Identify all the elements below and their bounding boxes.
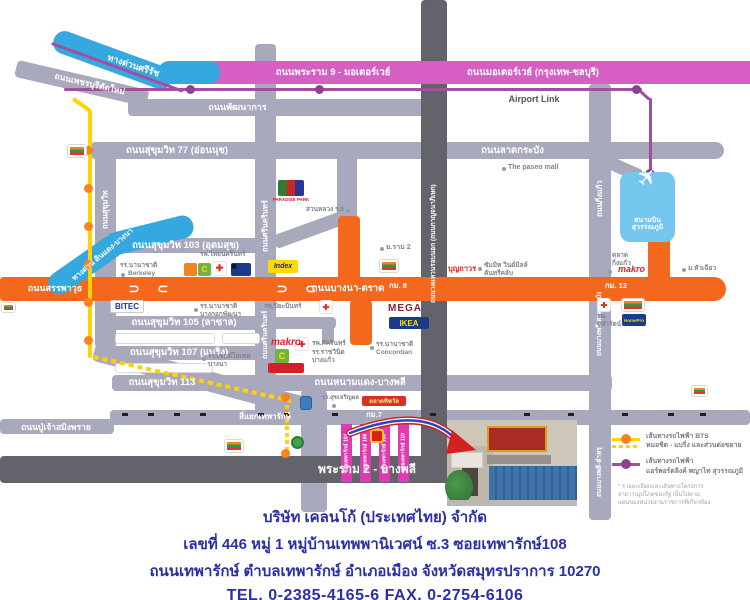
bitec-logo: BITEC [110,300,144,313]
label-sanphawut: ถนนสรรพาวุธ [16,282,94,295]
legend-airportlink-row: เส้นทางรถไฟฟ้า แอร์พอร์ตลิงค์ พญาไท สุวร… [612,457,750,475]
legend-bts-line1: เส้นทางรถไฟฟ้า BTS [646,432,741,441]
label-berkeley-school-1: รร.นานาชาติ [120,262,157,269]
label-suanluang-r9: สวนหลวง ร.9 [306,206,344,213]
index-logo: Index [268,260,298,273]
store-logo-orange [184,263,197,276]
road-tick [332,413,338,416]
company-photo-sign [487,426,547,452]
label-motorway: ถนนมอเตอร์เวย์ (กรุงเทพ-ชลบุรี) [448,66,618,79]
company-photo-awning [487,455,551,464]
hospital-cross-icon: ✚ [598,299,610,311]
road-tick [622,413,628,416]
company-contact: TEL. 0-2385-4165-6 FAX. 0-2754-6106 [0,587,750,600]
label-namdaeng-bangplee: ถนนหนามแดง-บางพลี [302,377,418,389]
uturn-mark: ⊃ ⊂ [126,281,178,297]
mega-bangna-logo: MEGA [388,303,422,314]
company-photo-sign-white [451,452,483,468]
tippawan-market-badge: ตลาดทิพวัล [362,396,406,406]
landmark-dot [478,267,482,271]
landmark-dot [332,404,336,408]
landmark-dot [121,273,125,277]
label-chularat-2: จุฬารัตน์ [597,321,621,328]
bts-station-dot [84,184,93,193]
bts-hook [72,97,92,113]
seven-eleven-logo [380,260,398,272]
legend-note-line1: * รายละเอียดและเส้นทางโครงการ [618,483,750,491]
paradise-park-logo-stripes [278,180,304,196]
company-address-block: บริษัท เคลนโก้ (ประเทศไทย) จำกัด เลขที่ … [0,505,750,600]
label-concordian-1: รร.นานาชาติ [376,341,413,348]
label-sukhumvit113: ถนนสุขุมวิท 113 [116,377,208,389]
hospital-cross-icon: ✚ [213,262,226,275]
road-tick [200,413,206,416]
label-thainakarin-hospital: รพ.ไทยนครินทร์ [200,251,245,258]
label-huachiew-university: ม.หัวเฉียว [688,265,716,272]
label-windmill-2: คันทรีคลับ [484,270,513,277]
landmark-dot [202,357,206,361]
label-berkeley-school-2: Berkeley [128,270,155,277]
bts-line-icon [612,434,646,448]
legend-note-line2: สาธารณูปโภคของรัฐ เป็นไปตาม [618,491,750,499]
label-thepharak-junction: สี่แยกเทพารักษ์ [226,411,304,423]
ikea-logo: IKEA [389,317,429,329]
road-tick [174,413,180,416]
legend-airportlink-text: เส้นทางรถไฟฟ้า แอร์พอร์ตลิงค์ พญาไท สุวร… [646,457,743,475]
landmark-dot [380,247,384,251]
label-sukhumvit105: ถนนสุขุมวิท 105 (ลาซาล) [118,317,250,329]
bts-station-d ot [84,298,93,307]
road-tick [700,413,706,416]
road-lasalle-white [115,333,215,344]
road-tick [524,413,530,416]
label-windmill-1: ซัมมิท วินด์มิลล์ [484,262,528,269]
label-stjoseph-1: รร.เซนต์โยเซฟ [208,353,251,360]
label-sukhumvit77: ถนนสุขุมวิท 77 (อ่อนนุช) [112,144,242,157]
bts-station-dot [84,222,93,231]
legend-bts-line2: หมอชิต - แบริ่ง และส่วนต่อขยาย [646,441,741,450]
orange-ramp-airport [648,236,670,282]
label-talad-kingkaew-1: ตลาด [612,252,628,259]
label-chularat-1: รพ. [597,313,607,320]
road-tick [148,413,154,416]
label-ratchawinit-2: บางแก้ว [312,357,335,364]
bts-extension-vert [285,398,289,456]
paradise-park-logo-text: PARADISE PARK [272,198,310,212]
airport-link-line-icon [612,459,646,473]
landmark-dot [502,167,506,171]
label-sukjaroenpon-school: รร.สุขเจริญผล [322,395,359,402]
landmark-blue-icon [300,396,312,410]
landmark-dot [682,268,686,272]
landmark-dot [370,346,374,350]
seven-eleven-logo [2,303,15,312]
label-boonthavorn: บุญถาวร [448,263,476,275]
airportlink-station-dot [632,85,641,94]
bigc-logo: C [198,263,211,276]
makro-logo: makro [271,337,301,348]
landmark-dot [194,308,198,312]
label-bangkok-pattana-1: รร.นานาชาติ [200,303,237,310]
label-paseo-mall: The paseo mall [508,164,559,172]
landmark-green-icon [291,436,304,449]
legend-airportlink-line2: แอร์พอร์ตลิงค์ พญาไท สุวรรณภูมิ [646,467,743,476]
hospital-cross-icon: ✚ [320,301,332,313]
label-kingkaew-vert: ถนนกิ่งแก้ว [589,156,611,241]
label-concordian-2: Concordian [376,349,412,356]
company-address-line1: เลขที่ 446 หมู่ 1 หมู่บ้านเทพพานิเวศน์ ซ… [0,532,750,556]
label-sikarin-hospital: รพ.ศิครินทร์ [312,340,346,347]
legend-bts-text: เส้นทางรถไฟฟ้า BTS หมอชิต - แบริ่ง และส่… [646,432,741,450]
orange-ramp-south [350,300,372,345]
legend-bts-row: เส้นทางรถไฟฟ้า BTS หมอชิต - แบริ่ง และส่… [612,432,750,450]
label-poochao: ถนนปู่เจ้าสมิงพราย [8,421,104,433]
road-tick [122,413,128,416]
label-bangplee-tamru-vert: ถนนบางพลี-ตำหรุ [589,428,611,516]
label-ratchawinit-1: รร.ราชวินิต [312,349,345,356]
landmark-dot [346,209,350,213]
bts-station-dot [84,336,93,345]
airportlink-station-dot [315,85,324,94]
label-suvarnabhumi: สนามบิน สุวรรณภูมิ [620,210,675,238]
store-sign-logo-navy: HomePro [622,314,646,326]
landmark-dot [608,270,612,274]
label-phatthanakan: ถนนพัฒนาการ [195,101,280,114]
seven-eleven-logo [692,386,707,396]
road-tick [568,413,574,416]
orange-ramp-north [338,216,360,282]
company-photo-plant [445,470,473,504]
label-ladkrabang: ถนนลาดกระบัง [465,144,560,157]
mall-logo-navy: ▦ [231,263,251,276]
label-bangkok-pattana-2: บางกอกพัฒนา [200,311,241,318]
label-srinakarin-upper: ถนนศรีนครินทร์ [255,180,276,272]
label-km8: กม. 8 [383,280,413,291]
company-location-marker [370,429,384,443]
label-rama2-bangplee: พระราม 2 - บางพลี [306,459,428,479]
company-name: บริษัท เคลนโก้ (ประเทศไทย) จำกัด [0,505,750,529]
label-km7: กม.7 [360,409,388,420]
bigc-logo: C [275,349,289,363]
seven-eleven-logo [68,145,86,157]
road-tick [668,413,674,416]
seven-eleven-logo [225,440,243,452]
airportlink-station-dot [186,85,195,94]
bts-station-dot [281,449,290,458]
label-stjoseph-2: บางนา [208,361,227,368]
map-legend: เส้นทางรถไฟฟ้า BTS หมอชิต - แบริ่ง และส่… [612,432,750,507]
store-banner-logo [268,363,304,373]
legend-airportlink-line1: เส้นทางรถไฟฟ้า [646,457,743,466]
road-tick [430,413,436,416]
label-piyamin-hospital: รพ.ปิยะมินทร์ [264,303,302,310]
label-ram2-university: ม.ราม 2 [386,244,411,252]
road-phatthanakan [128,99,440,116]
airportlink-line [64,88,642,91]
label-airport-link: Airport Link [502,94,566,106]
legend-note: * รายละเอียดและเส้นทางโครงการ สาธารณูปโภ… [618,483,750,507]
makro-logo: makro [618,264,645,274]
company-address-line2: ถนนเทพารักษ์ ตำบลเทพารักษ์ อำเภอเมือง จั… [0,559,750,583]
map-canvas: ซอยเทพารักษ์ 104ซอยเทพารักษ์ 106ซอยเทพาร… [0,0,750,600]
label-rama9-motorway: ถนนพระราม 9 - มอเตอร์เวย์ [258,66,408,79]
bts-station-dot [281,393,290,402]
seven-eleven-logo [622,299,644,311]
